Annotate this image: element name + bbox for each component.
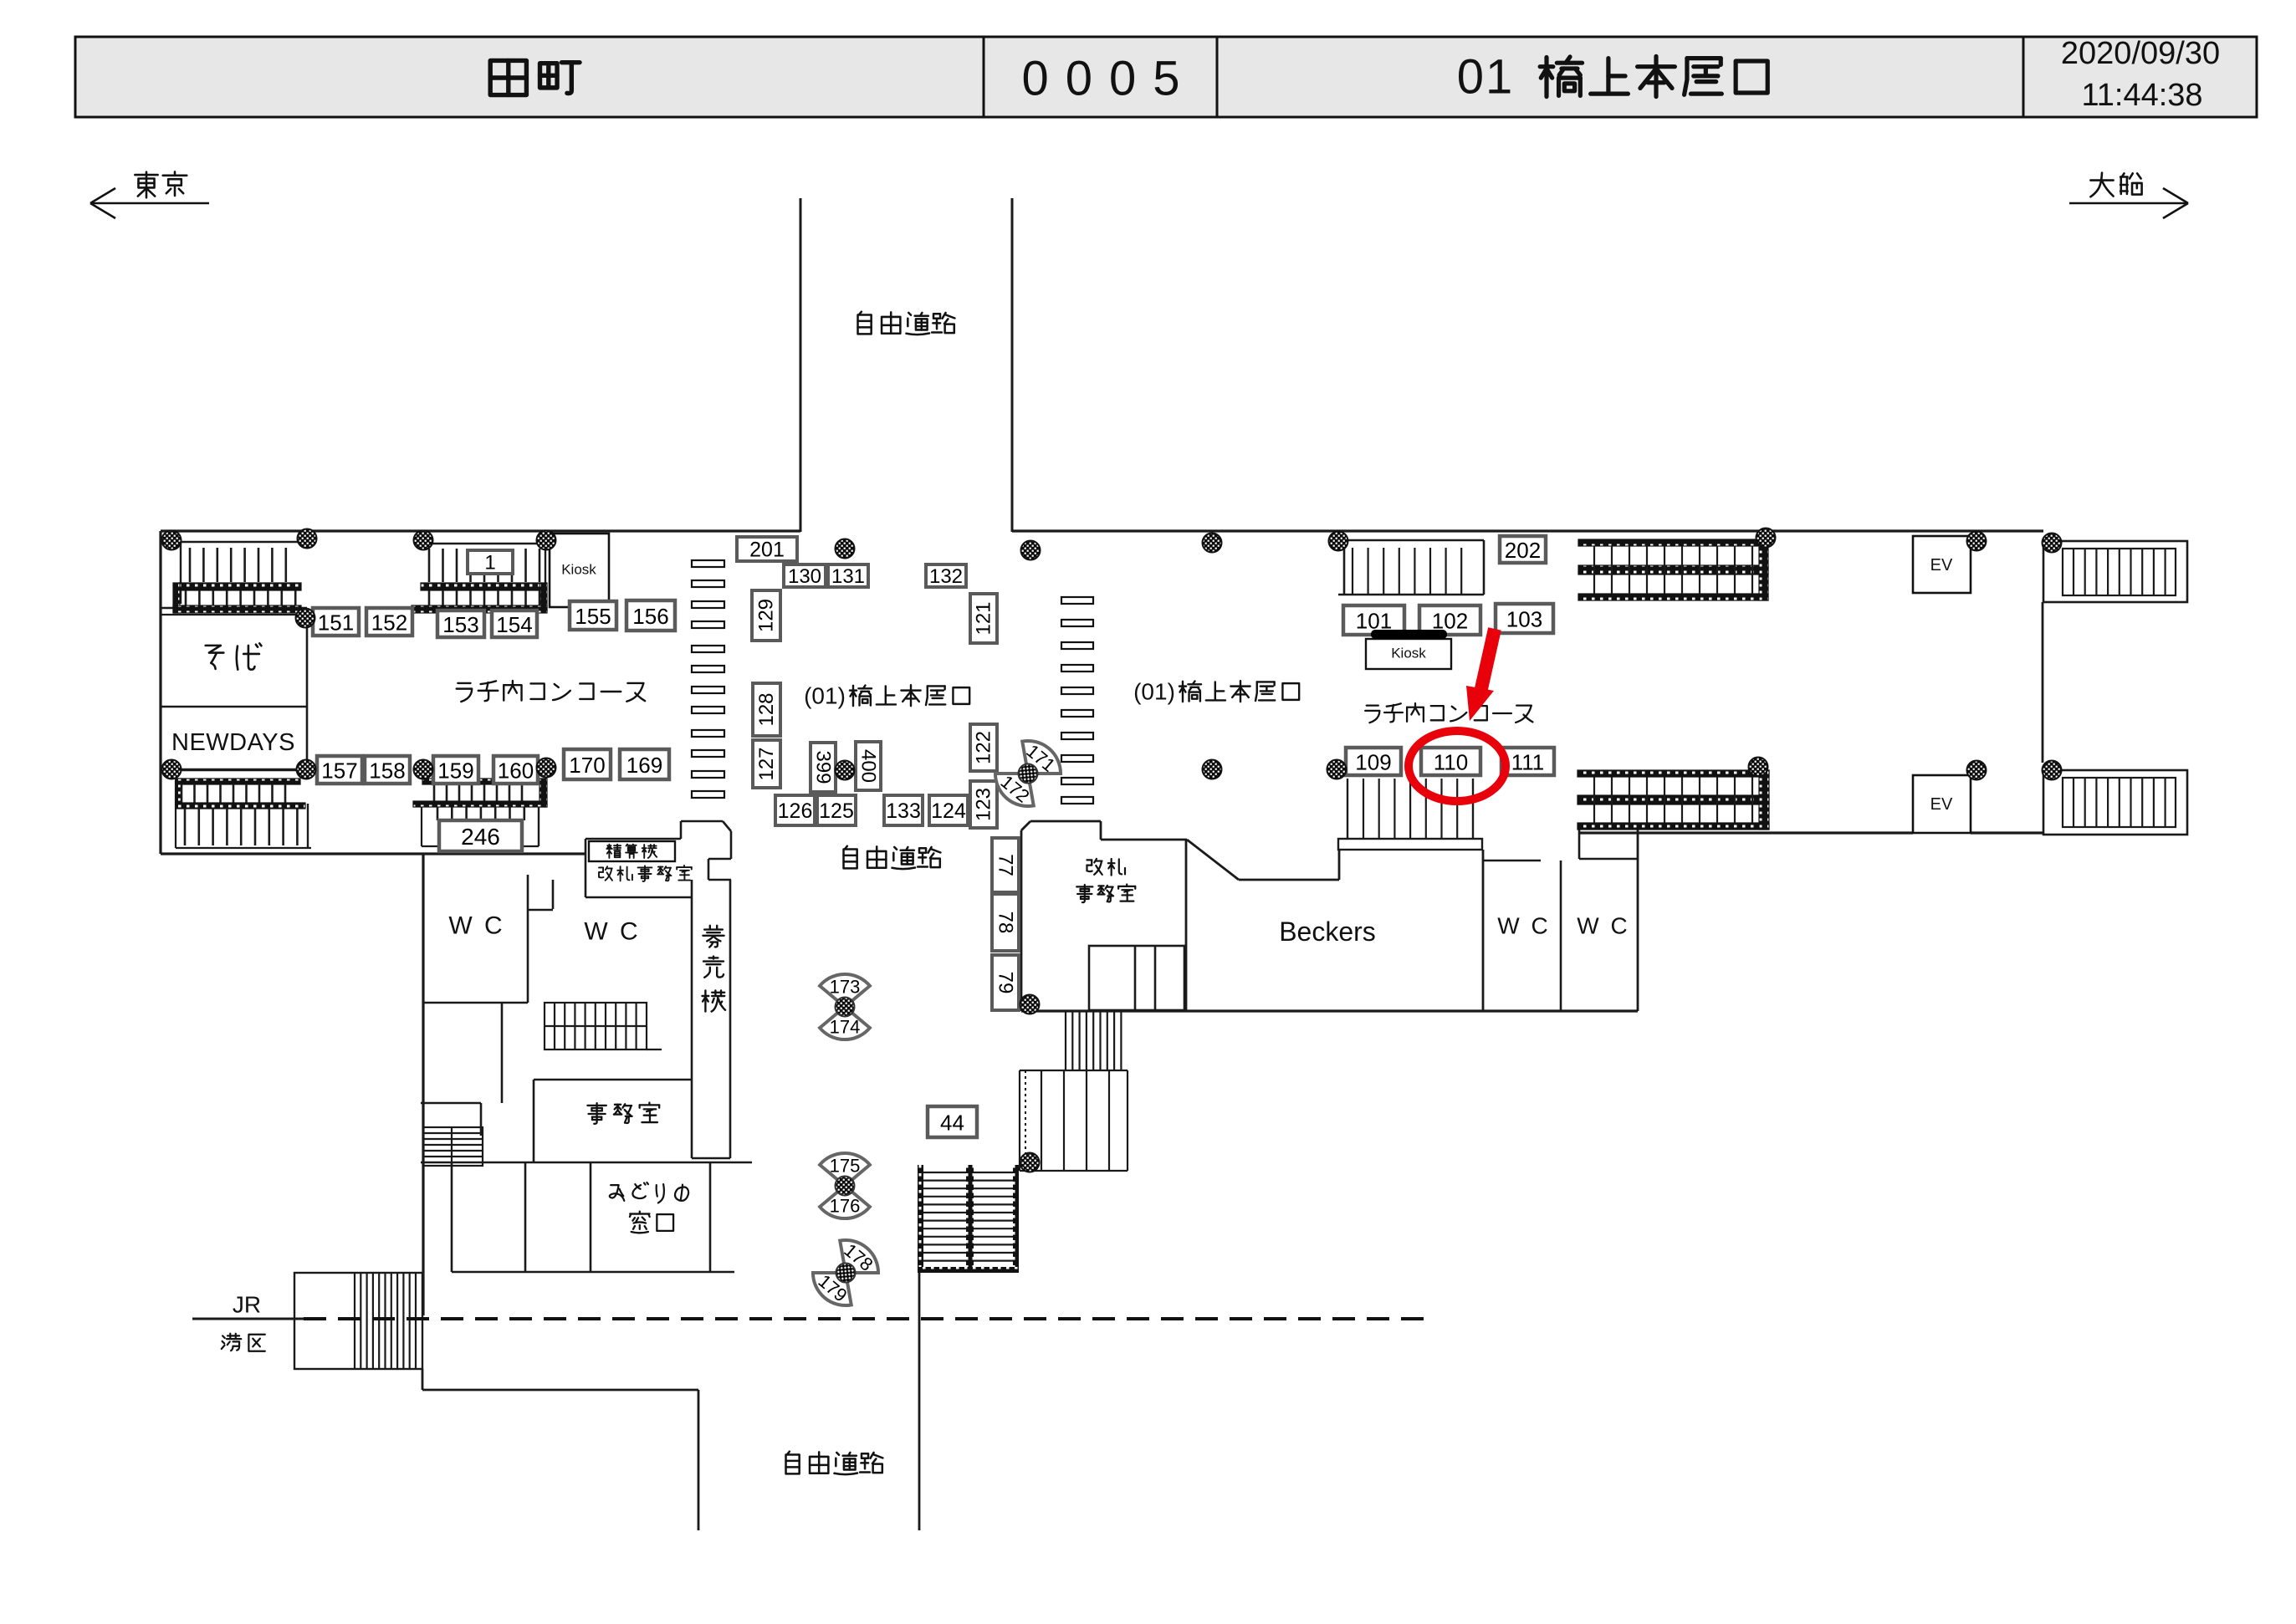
svg-text:125: 125 [819,799,854,823]
svg-text:151: 151 [318,610,354,636]
svg-text:173: 173 [830,977,861,998]
svg-text:122: 122 [973,731,995,764]
svg-text:121: 121 [973,601,995,635]
svg-text:128: 128 [755,692,778,726]
svg-text:157: 157 [321,758,357,784]
svg-text:0005: 0005 [1021,52,1196,106]
svg-text:110: 110 [1434,750,1468,775]
svg-text:160: 160 [498,758,534,784]
svg-text:126: 126 [778,799,813,823]
svg-text:201: 201 [749,539,785,562]
svg-text:174: 174 [830,1017,861,1038]
svg-text:JR: JR [233,1292,261,1318]
svg-text:NEWDAYS: NEWDAYS [171,729,295,756]
svg-text:153: 153 [442,612,478,637]
svg-text:Beckers: Beckers [1279,917,1376,947]
svg-text:EV: EV [1930,556,1953,575]
svg-text:156: 156 [632,604,668,629]
svg-text:124: 124 [931,799,966,823]
svg-text:EV: EV [1930,795,1953,814]
svg-text:202: 202 [1505,538,1541,563]
svg-text:158: 158 [369,758,405,784]
svg-text:400: 400 [857,749,880,783]
svg-text:W C: W C [584,918,640,946]
svg-text:159: 159 [437,758,473,784]
svg-text:79: 79 [995,972,1017,994]
svg-text:W C: W C [1497,913,1550,939]
svg-text:155: 155 [575,604,611,629]
svg-text:131: 131 [831,565,865,588]
svg-text:W C: W C [448,912,504,940]
svg-text:176: 176 [830,1196,861,1217]
svg-text:129: 129 [755,599,778,632]
svg-text:154: 154 [496,612,532,637]
svg-text:132: 132 [929,565,963,588]
svg-text:103: 103 [1506,607,1542,632]
svg-text:130: 130 [788,565,821,588]
svg-text:246: 246 [461,824,500,850]
svg-text:(01): (01) [1133,679,1175,705]
svg-text:Kiosk: Kiosk [1391,646,1426,661]
svg-text:(01): (01) [804,683,846,709]
svg-text:175: 175 [830,1156,861,1177]
svg-text:11:44:38: 11:44:38 [2081,78,2202,113]
svg-text:169: 169 [626,753,662,778]
svg-text:W C: W C [1577,913,1629,939]
svg-text:77: 77 [995,854,1017,876]
svg-text:127: 127 [755,747,778,780]
svg-text:Kiosk: Kiosk [561,562,596,578]
svg-text:2020/09/30: 2020/09/30 [2061,36,2220,71]
svg-text:78: 78 [995,912,1017,934]
svg-text:123: 123 [973,788,995,821]
svg-text:109: 109 [1355,750,1391,775]
svg-text:1: 1 [484,552,495,575]
svg-text:152: 152 [371,610,407,636]
svg-text:399: 399 [812,750,835,784]
svg-text:01: 01 [1457,50,1515,105]
svg-text:111: 111 [1511,750,1545,775]
svg-text:133: 133 [886,799,921,823]
svg-text:44: 44 [940,1111,964,1136]
svg-text:170: 170 [569,753,605,778]
